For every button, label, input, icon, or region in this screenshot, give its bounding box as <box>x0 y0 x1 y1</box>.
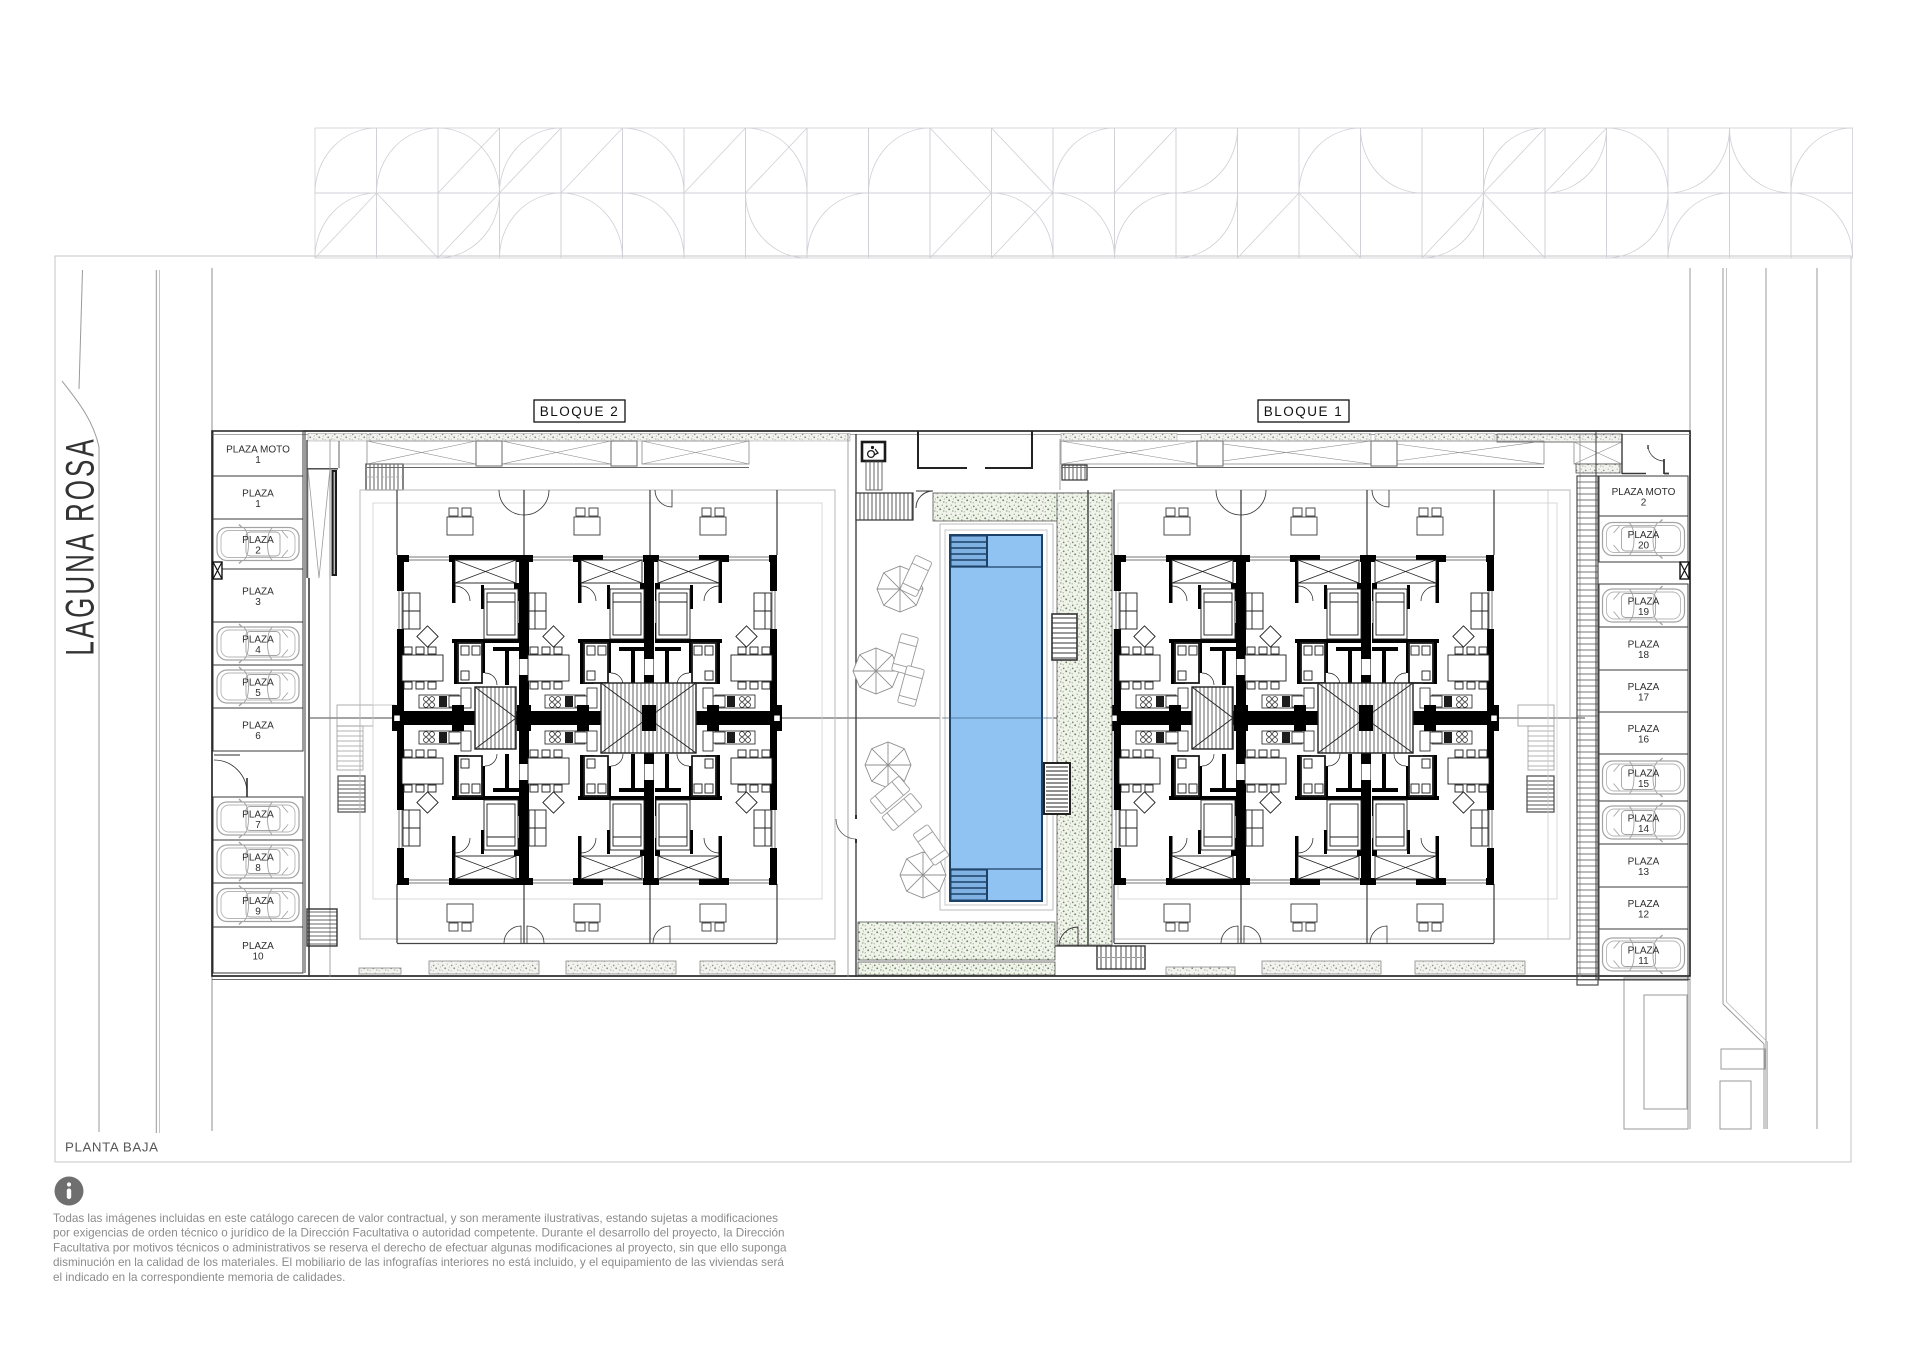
svg-text:2: 2 <box>1641 498 1647 509</box>
svg-text:11: 11 <box>1638 956 1649 967</box>
svg-text:6: 6 <box>255 731 261 742</box>
svg-text:7: 7 <box>255 820 261 831</box>
svg-text:18: 18 <box>1638 650 1650 661</box>
svg-text:4: 4 <box>255 645 261 656</box>
svg-text:PLAZA: PLAZA <box>242 635 274 646</box>
svg-text:PLAZA: PLAZA <box>242 853 274 864</box>
svg-text:PLAZA: PLAZA <box>242 587 274 598</box>
svg-text:16: 16 <box>1638 735 1650 746</box>
svg-text:LAGUNA ROSA: LAGUNA ROSA <box>58 436 103 655</box>
svg-text:disminución en la calidad de: disminución en la calidad de los materia… <box>53 1256 784 1269</box>
svg-text:PLAZA: PLAZA <box>1628 597 1660 608</box>
svg-text:BLOQUE 2: BLOQUE 2 <box>540 404 620 419</box>
svg-text:PLAZA: PLAZA <box>1628 899 1660 910</box>
svg-text:3: 3 <box>255 597 261 608</box>
svg-text:12: 12 <box>1638 910 1650 921</box>
svg-text:PLAZA: PLAZA <box>1628 640 1660 651</box>
svg-text:PLAZA: PLAZA <box>242 721 274 732</box>
svg-text:PLAZA: PLAZA <box>1628 769 1660 780</box>
svg-text:15: 15 <box>1638 779 1650 790</box>
svg-text:PLAZA: PLAZA <box>1628 814 1660 825</box>
svg-text:el indicado en la correspondie: el indicado en la correspondiente memori… <box>53 1271 345 1284</box>
svg-text:por exigencias de orden técni: por exigencias de orden técnico o jurídi… <box>53 1227 785 1240</box>
svg-text:10: 10 <box>252 952 264 963</box>
svg-text:19: 19 <box>1638 607 1650 618</box>
svg-text:20: 20 <box>1638 541 1650 552</box>
svg-text:PLAZA: PLAZA <box>1628 857 1660 868</box>
svg-text:PLAZA: PLAZA <box>1628 530 1660 541</box>
svg-text:13: 13 <box>1638 867 1650 878</box>
svg-text:PLAZA: PLAZA <box>1628 946 1660 957</box>
svg-text:PLAZA: PLAZA <box>1628 682 1660 693</box>
svg-text:5: 5 <box>255 688 261 699</box>
svg-text:Todas las imágenes incluidas e: Todas las imágenes incluidas en este cat… <box>53 1212 778 1225</box>
svg-text:1: 1 <box>255 499 261 510</box>
svg-text:PLAZA: PLAZA <box>242 489 274 500</box>
svg-text:14: 14 <box>1638 824 1650 835</box>
svg-text:PLAZA: PLAZA <box>242 941 274 952</box>
svg-text:PLAZA: PLAZA <box>242 896 274 907</box>
svg-text:PLAZA MOTO: PLAZA MOTO <box>1612 487 1676 498</box>
svg-text:PLAZA: PLAZA <box>242 535 274 546</box>
svg-text:17: 17 <box>1638 693 1650 704</box>
svg-text:PLAZA MOTO: PLAZA MOTO <box>226 445 290 456</box>
svg-text:BLOQUE 1: BLOQUE 1 <box>1264 404 1344 419</box>
svg-text:1: 1 <box>255 455 261 466</box>
svg-text:PLAZA: PLAZA <box>1628 724 1660 735</box>
svg-text:8: 8 <box>255 863 261 874</box>
svg-text:2: 2 <box>255 546 261 557</box>
svg-text:PLANTA BAJA: PLANTA BAJA <box>65 1140 159 1155</box>
svg-text:9: 9 <box>255 907 261 918</box>
svg-text:PLAZA: PLAZA <box>242 678 274 689</box>
svg-text:Facultativa por motivos técnic: Facultativa por motivos técnicos o admin… <box>53 1241 787 1254</box>
svg-text:PLAZA: PLAZA <box>242 810 274 821</box>
